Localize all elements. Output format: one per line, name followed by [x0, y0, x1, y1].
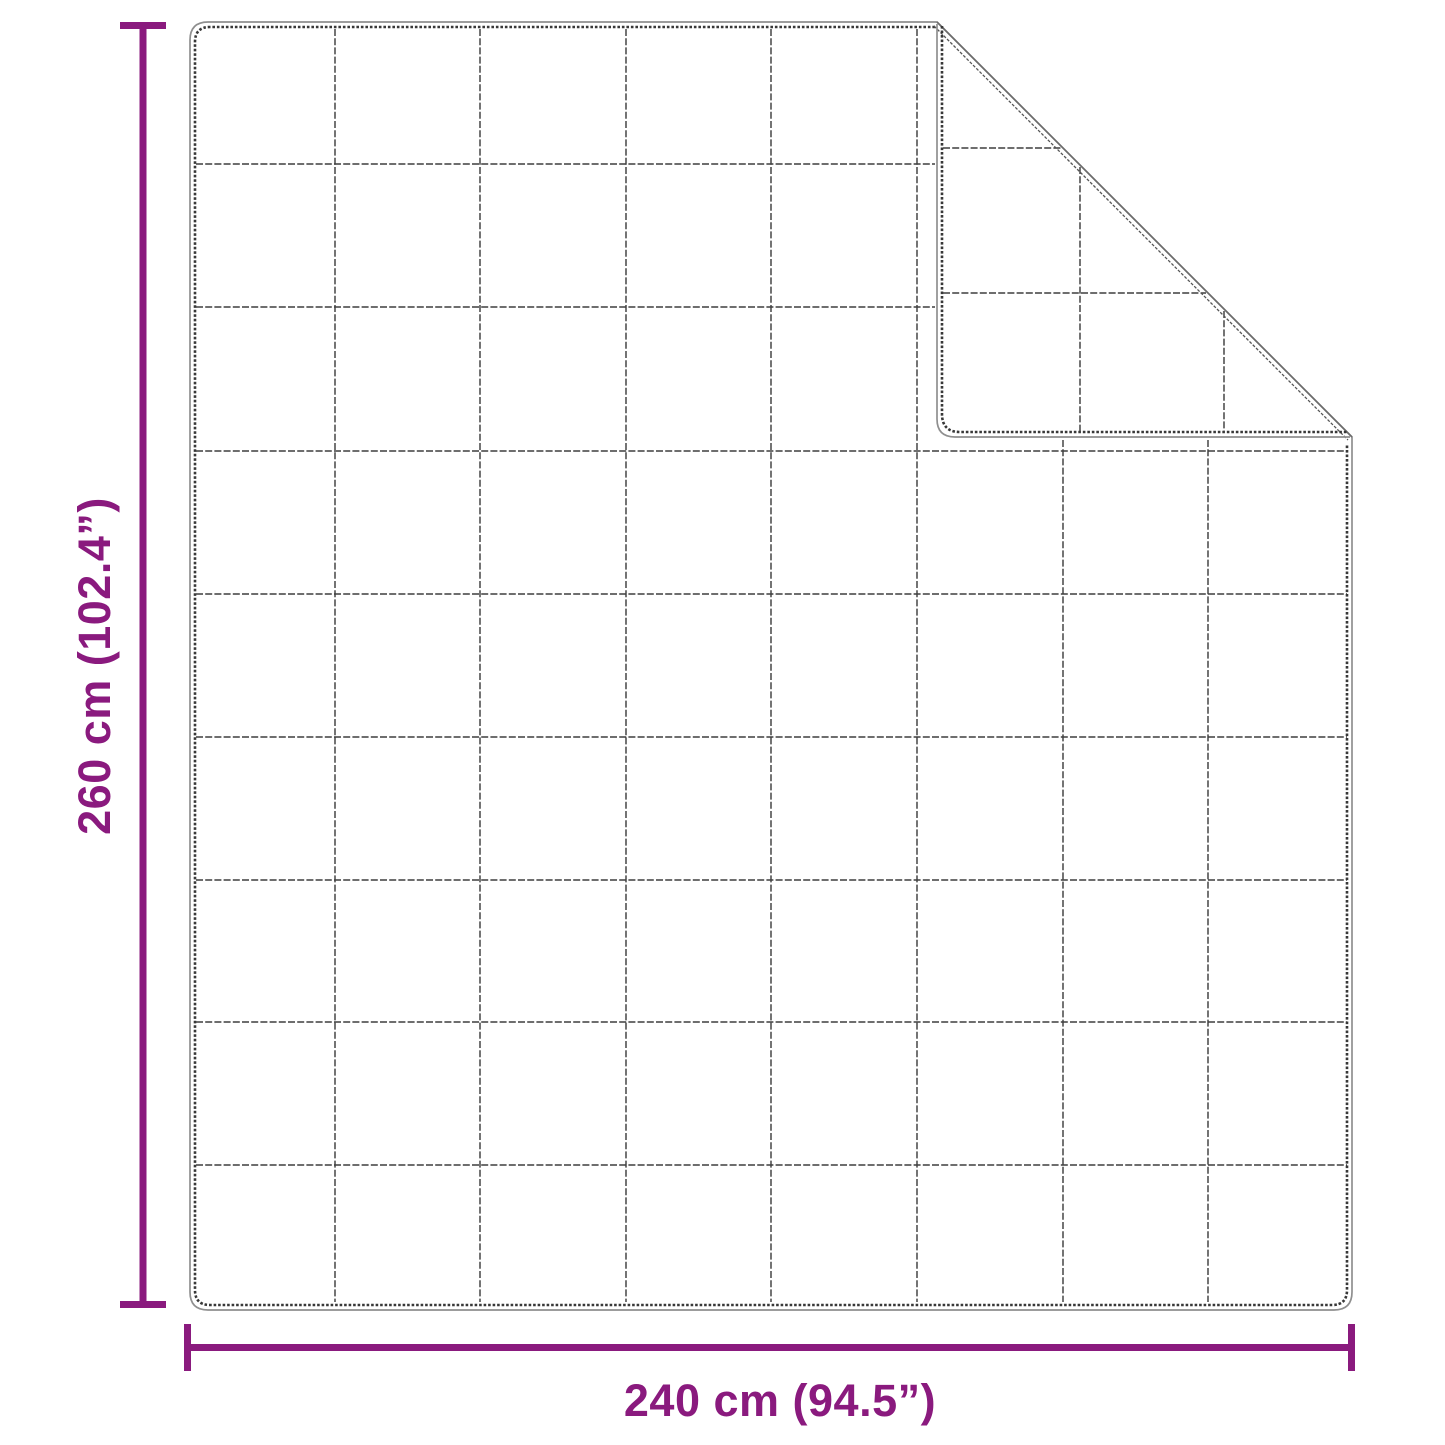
height-dimension-label: 260 cm (102.4”): [69, 497, 120, 835]
fold-crease-inner-line: [934, 26, 1348, 440]
height-dimension-line: [140, 25, 147, 1308]
height-dimension: 260 cm (102.4”): [69, 22, 166, 1308]
blanket-dimension-diagram: 260 cm (102.4”) 240 cm (94.5”): [0, 0, 1445, 1445]
folded-corner-edge: [937, 24, 1350, 437]
width-dimension-line: [187, 1344, 1352, 1351]
quilt-grid-folded-corner: [943, 148, 1224, 431]
diagram-drawing: 260 cm (102.4”) 240 cm (94.5”): [0, 0, 1445, 1445]
width-dimension-cap-right: [1348, 1324, 1355, 1371]
height-dimension-cap-top: [120, 22, 166, 29]
height-dimension-cap-bottom: [120, 1301, 166, 1308]
width-dimension: 240 cm (94.5”): [184, 1324, 1355, 1426]
quilt-grid-front: [196, 29, 1347, 1302]
width-dimension-cap-left: [184, 1324, 191, 1371]
width-dimension-label: 240 cm (94.5”): [624, 1375, 936, 1426]
fold-crease-line: [937, 22, 1352, 437]
